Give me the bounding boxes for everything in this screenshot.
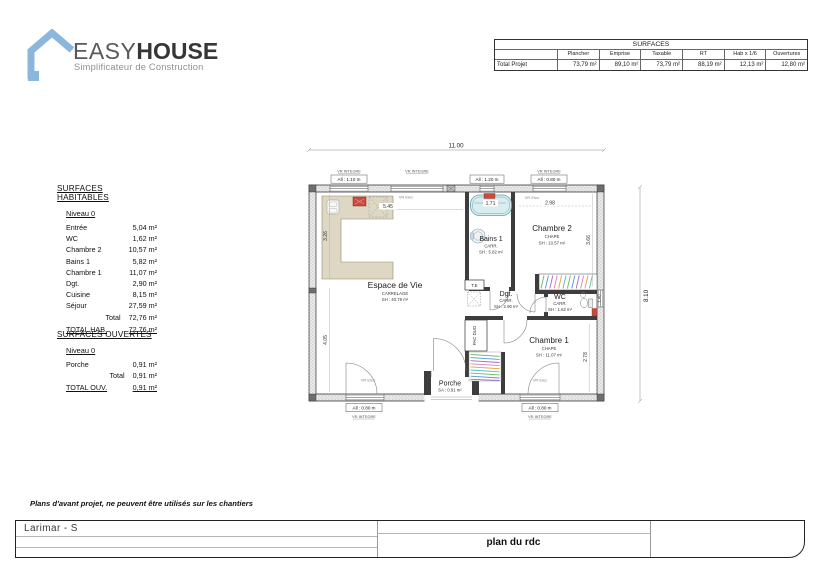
val-taxable: 73,79 m² — [640, 60, 682, 70]
room-dgt-area: SH : 2.90 m² — [494, 304, 519, 309]
surfaces-table-header-row: Plancher Emprise Taxable RT Hab x 1/6 Ou… — [495, 49, 807, 59]
col-emprise: Emprise — [599, 50, 641, 59]
row-value: 8,15 m² — [133, 289, 157, 300]
pac-label: PAC DUO — [472, 325, 477, 345]
list-item: Porche0,91 m² — [66, 359, 157, 370]
dim-left-bottom: 4.05 — [323, 335, 329, 345]
logo: EASYHOUSE Simplificateur de Construction — [26, 29, 226, 81]
col-taxable: Taxable — [640, 50, 682, 59]
floor-plan: 11.00 8.10 — [300, 140, 660, 430]
vr-elec-label: VR Elec — [361, 378, 375, 383]
ouvertes-grand-row: TOTAL OUV.0,91 m² — [66, 382, 157, 393]
habitables-total-row: Total72,76 m² — [66, 312, 157, 323]
vr-elec-label: VR Elec — [533, 378, 547, 383]
room-porche-name: Porche — [439, 381, 461, 388]
dim-wc-window: 1.40 — [597, 294, 602, 303]
brand-text: EASYHOUSE — [73, 38, 218, 65]
room-dgt-finish: CARR. — [499, 298, 512, 303]
row-value: 2,90 m² — [133, 278, 157, 289]
wardrobe-left — [469, 352, 501, 381]
room-wc-name: WC — [554, 294, 566, 301]
te-label: T.E — [471, 283, 477, 288]
room-espace-name: Espace de Vie — [368, 280, 423, 290]
row-value: 5,82 m² — [133, 256, 157, 267]
title-block: Larimar - S plan du rdc — [15, 520, 805, 558]
val-rt: 88,19 m² — [682, 60, 724, 70]
habitables-title: SURFACES HABITABLES — [57, 184, 157, 202]
wc-fixtures — [580, 292, 597, 316]
habitables-level: Niveau 0 — [66, 209, 157, 218]
surfaces-summary-table: SURFACES Plancher Emprise Taxable RT Hab… — [494, 39, 808, 71]
toilet — [580, 298, 587, 307]
window-label: All : 1.10 m — [338, 177, 361, 182]
wardrobe-top — [539, 274, 597, 290]
grand-label: TOTAL OUV. — [66, 382, 107, 393]
val-hab: 12,13 m² — [724, 60, 766, 70]
dim-bathtub: 1.71 — [486, 201, 496, 207]
ouvertes-level: Niveau 0 — [66, 346, 157, 355]
room-porche-area: SA : 0.91 m² — [438, 388, 462, 393]
total-value: 72,76 m² — [129, 312, 157, 323]
dim-ch2-height: 3.66 — [586, 235, 592, 245]
list-item: WC1,62 m² — [66, 233, 157, 244]
row-label: WC — [66, 233, 78, 244]
title-block-line — [16, 536, 377, 537]
disclaimer-note: Plans d'avant projet, ne peuvent être ut… — [30, 499, 253, 508]
row-value: 11,07 m² — [129, 267, 157, 278]
house-icon — [26, 29, 76, 81]
vr-elec-label: VR Elec — [399, 195, 413, 200]
row-value: 0,91 m² — [133, 359, 157, 370]
total-label: Total — [105, 312, 120, 323]
grand-value: 0,91 m² — [133, 382, 157, 393]
brand-house: HOUSE — [136, 38, 218, 64]
reserved-area-marker — [468, 292, 481, 306]
row-label: Bains 1 — [66, 256, 90, 267]
window-label: All : 0.80 m — [353, 405, 376, 410]
room-bains-finish: CARR. — [484, 244, 497, 249]
vr-label: VR INTEGRE — [337, 169, 361, 174]
row-label: Cuisine — [66, 289, 90, 300]
val-plancher: 73,79 m² — [557, 60, 599, 70]
list-item: Chambre 210,57 m² — [66, 244, 157, 255]
row-label: Dgt. — [66, 278, 79, 289]
list-item: Entrée5,04 m² — [66, 222, 157, 233]
list-item: Cuisine8,15 m² — [66, 289, 157, 300]
ouvertes-title: SURFACES OUVERTES — [57, 330, 157, 339]
room-ch1-name: Chambre 1 — [529, 336, 569, 345]
radiator-bath — [484, 194, 495, 199]
val-ouvertures: 12,80 m² — [765, 60, 807, 70]
title-block-line — [377, 533, 650, 534]
col-plancher: Plancher — [557, 50, 599, 59]
window-label: All : 1.20 m — [476, 177, 499, 182]
room-bains-name: Bains 1 — [479, 236, 502, 243]
window-label: All : 0.80 m — [538, 177, 561, 182]
row-value: 27,59 m² — [129, 300, 157, 311]
room-wc-area: SH : 1.62 m² — [548, 307, 573, 312]
col-rt: RT — [682, 50, 724, 59]
dim-total-width: 11.00 — [448, 143, 464, 150]
room-ch1-area: SH : 11.07 m² — [536, 353, 563, 358]
surfaces-table-value-row: Total Projet 73,79 m² 89,10 m² 73,79 m² … — [495, 59, 807, 70]
window-label: All : 0.80 m — [529, 405, 552, 410]
house-foot — [28, 71, 39, 81]
vr-elec-label: VR Elec — [525, 195, 539, 200]
row-label: Chambre 1 — [66, 267, 102, 278]
col-hab: Hab x 1/6 — [724, 50, 766, 59]
dim-left-top: 3.26 — [323, 231, 329, 241]
dim-ch2-width: 2.98 — [545, 201, 555, 207]
vr-label: VR INTEGRE — [405, 169, 429, 174]
plan-sheet: { "logo": { "brand_1": "EASY", "brand_2"… — [0, 0, 820, 580]
vr-label: VR INTEGRE — [528, 414, 552, 419]
dim-total-height: 8.10 — [643, 289, 650, 302]
brand-tagline: Simplificateur de Construction — [74, 62, 204, 72]
total-label: Total — [109, 370, 124, 381]
room-ch2-name: Chambre 2 — [532, 224, 572, 233]
sheet-title: plan du rdc — [377, 537, 650, 548]
room-espace-finish: CARRELAGE — [382, 291, 409, 296]
room-wc-finish: CARR. — [553, 301, 566, 306]
row-label: Entrée — [66, 222, 87, 233]
title-block-divider — [650, 521, 651, 557]
ouvertes-total-row: Total0,91 m² — [66, 370, 157, 381]
list-item: Séjour27,59 m² — [66, 300, 157, 311]
row-value: 10,57 m² — [129, 244, 157, 255]
surfaces-habitables-panel: SURFACES HABITABLES Niveau 0 Entrée5,04 … — [57, 184, 157, 335]
title-block-line — [16, 547, 377, 548]
room-ch2-finish: CHAPE — [545, 234, 560, 239]
total-value: 0,91 m² — [133, 370, 157, 381]
total-projet-label: Total Projet — [495, 60, 557, 70]
room-ch2-area: SH : 10.57 m² — [539, 241, 566, 246]
row-value: 1,62 m² — [133, 233, 157, 244]
dim-kitchen: 5.45 — [383, 204, 393, 210]
row-label: Porche — [66, 359, 89, 370]
surfaces-table-corner-cell — [495, 50, 557, 59]
val-emprise: 89,10 m² — [599, 60, 641, 70]
doors — [346, 291, 559, 394]
radiator-wc — [592, 309, 597, 317]
vr-label: VR INTEGRE — [537, 169, 561, 174]
list-item: Dgt.2,90 m² — [66, 278, 157, 289]
room-espace-area: SH : 40.78 m² — [382, 297, 409, 302]
vr-label: VR INTEGRE — [352, 414, 376, 419]
project-name: Larimar - S — [24, 523, 78, 534]
room-ch1-finish: CHAPE — [542, 346, 557, 351]
list-item: Bains 15,82 m² — [66, 256, 157, 267]
col-ouvertures: Ouvertures — [765, 50, 807, 59]
row-label: Séjour — [66, 300, 87, 311]
room-bains-area: SH : 5.82 m² — [479, 250, 504, 255]
row-value: 5,04 m² — [133, 222, 157, 233]
room-dgt-name: Dgt. — [500, 291, 513, 298]
surfaces-table-title: SURFACES — [495, 40, 807, 49]
list-item: Chambre 111,07 m² — [66, 267, 157, 278]
brand-easy: EASY — [73, 38, 136, 64]
row-label: Chambre 2 — [66, 244, 102, 255]
dim-ch1-height: 2.78 — [583, 352, 589, 362]
surfaces-ouvertes-panel: SURFACES OUVERTES Niveau 0 Porche0,91 m²… — [57, 330, 157, 394]
